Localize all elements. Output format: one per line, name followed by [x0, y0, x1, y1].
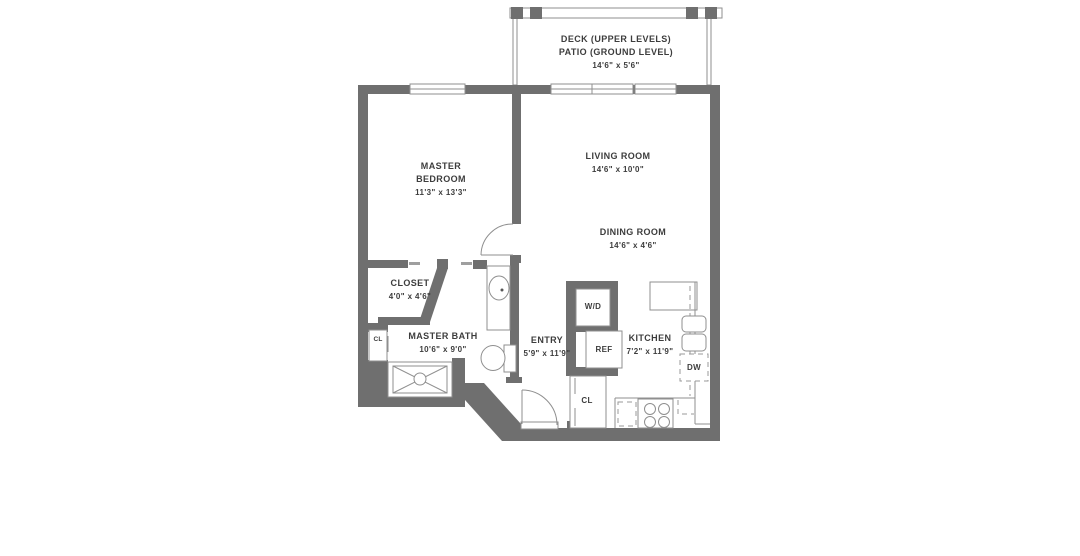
- floor-plan-drawing: [0, 0, 1080, 556]
- deck-door-window: [635, 84, 676, 94]
- dining-room-dims: 14'6" x 4'6": [600, 239, 666, 252]
- toilet: [481, 345, 516, 372]
- closet-dims: 4'0" x 4'6": [389, 290, 431, 303]
- entry-door: [521, 390, 558, 429]
- bath-closet: [369, 330, 388, 361]
- stove-burners: [638, 399, 673, 428]
- dining-room-label: DINING ROOM 14'6" x 4'6": [600, 226, 666, 252]
- kitchen-name: KITCHEN: [627, 332, 674, 345]
- deck-label-dims: 14'6" x 5'6": [559, 59, 673, 72]
- vanity-sink: [487, 266, 510, 330]
- master-bath-name: MASTER BATH: [408, 330, 477, 343]
- deck-label-line1: DECK (UPPER LEVELS): [559, 33, 673, 46]
- living-room-name: LIVING ROOM: [586, 150, 651, 163]
- dining-room-name: DINING ROOM: [600, 226, 666, 239]
- dishwasher-label: DW: [687, 363, 701, 372]
- entry-label: ENTRY 5'9" x 11'9": [524, 334, 571, 360]
- living-room-dims: 14'6" x 10'0": [586, 163, 651, 176]
- bedroom-window: [410, 84, 465, 94]
- kitchen-sink: [682, 316, 706, 351]
- master-bedroom-name-line2: BEDROOM: [415, 173, 467, 186]
- entry-closet-label: CL: [581, 396, 592, 405]
- master-bath-label: MASTER BATH 10'6" x 9'0": [408, 330, 477, 356]
- master-bedroom-name-line1: MASTER: [415, 160, 467, 173]
- entry-name: ENTRY: [524, 334, 571, 347]
- floor-plan-canvas: DECK (UPPER LEVELS) PATIO (GROUND LEVEL)…: [0, 0, 1080, 556]
- bedroom-door: [481, 224, 513, 255]
- kitchen-dims: 7'2" x 11'9": [627, 345, 674, 358]
- washer-dryer-label: W/D: [585, 302, 601, 311]
- master-bedroom-label: MASTER BEDROOM 11'3" x 13'3": [415, 160, 467, 199]
- bath-closet-label: CL: [373, 336, 382, 343]
- master-bedroom-dims: 11'3" x 13'3": [415, 186, 467, 199]
- bathtub: [388, 362, 452, 397]
- refrigerator-label: REF: [596, 345, 613, 354]
- master-bath-dims: 10'6" x 9'0": [408, 343, 477, 356]
- living-room-label: LIVING ROOM 14'6" x 10'0": [586, 150, 651, 176]
- living-room-window: [551, 84, 633, 94]
- closet-name: CLOSET: [389, 277, 431, 290]
- deck-label-line2: PATIO (GROUND LEVEL): [559, 46, 673, 59]
- closet-label: CLOSET 4'0" x 4'6": [389, 277, 431, 303]
- entry-dims: 5'9" x 11'9": [524, 347, 571, 360]
- deck-label: DECK (UPPER LEVELS) PATIO (GROUND LEVEL)…: [559, 33, 673, 72]
- kitchen-label: KITCHEN 7'2" x 11'9": [627, 332, 674, 358]
